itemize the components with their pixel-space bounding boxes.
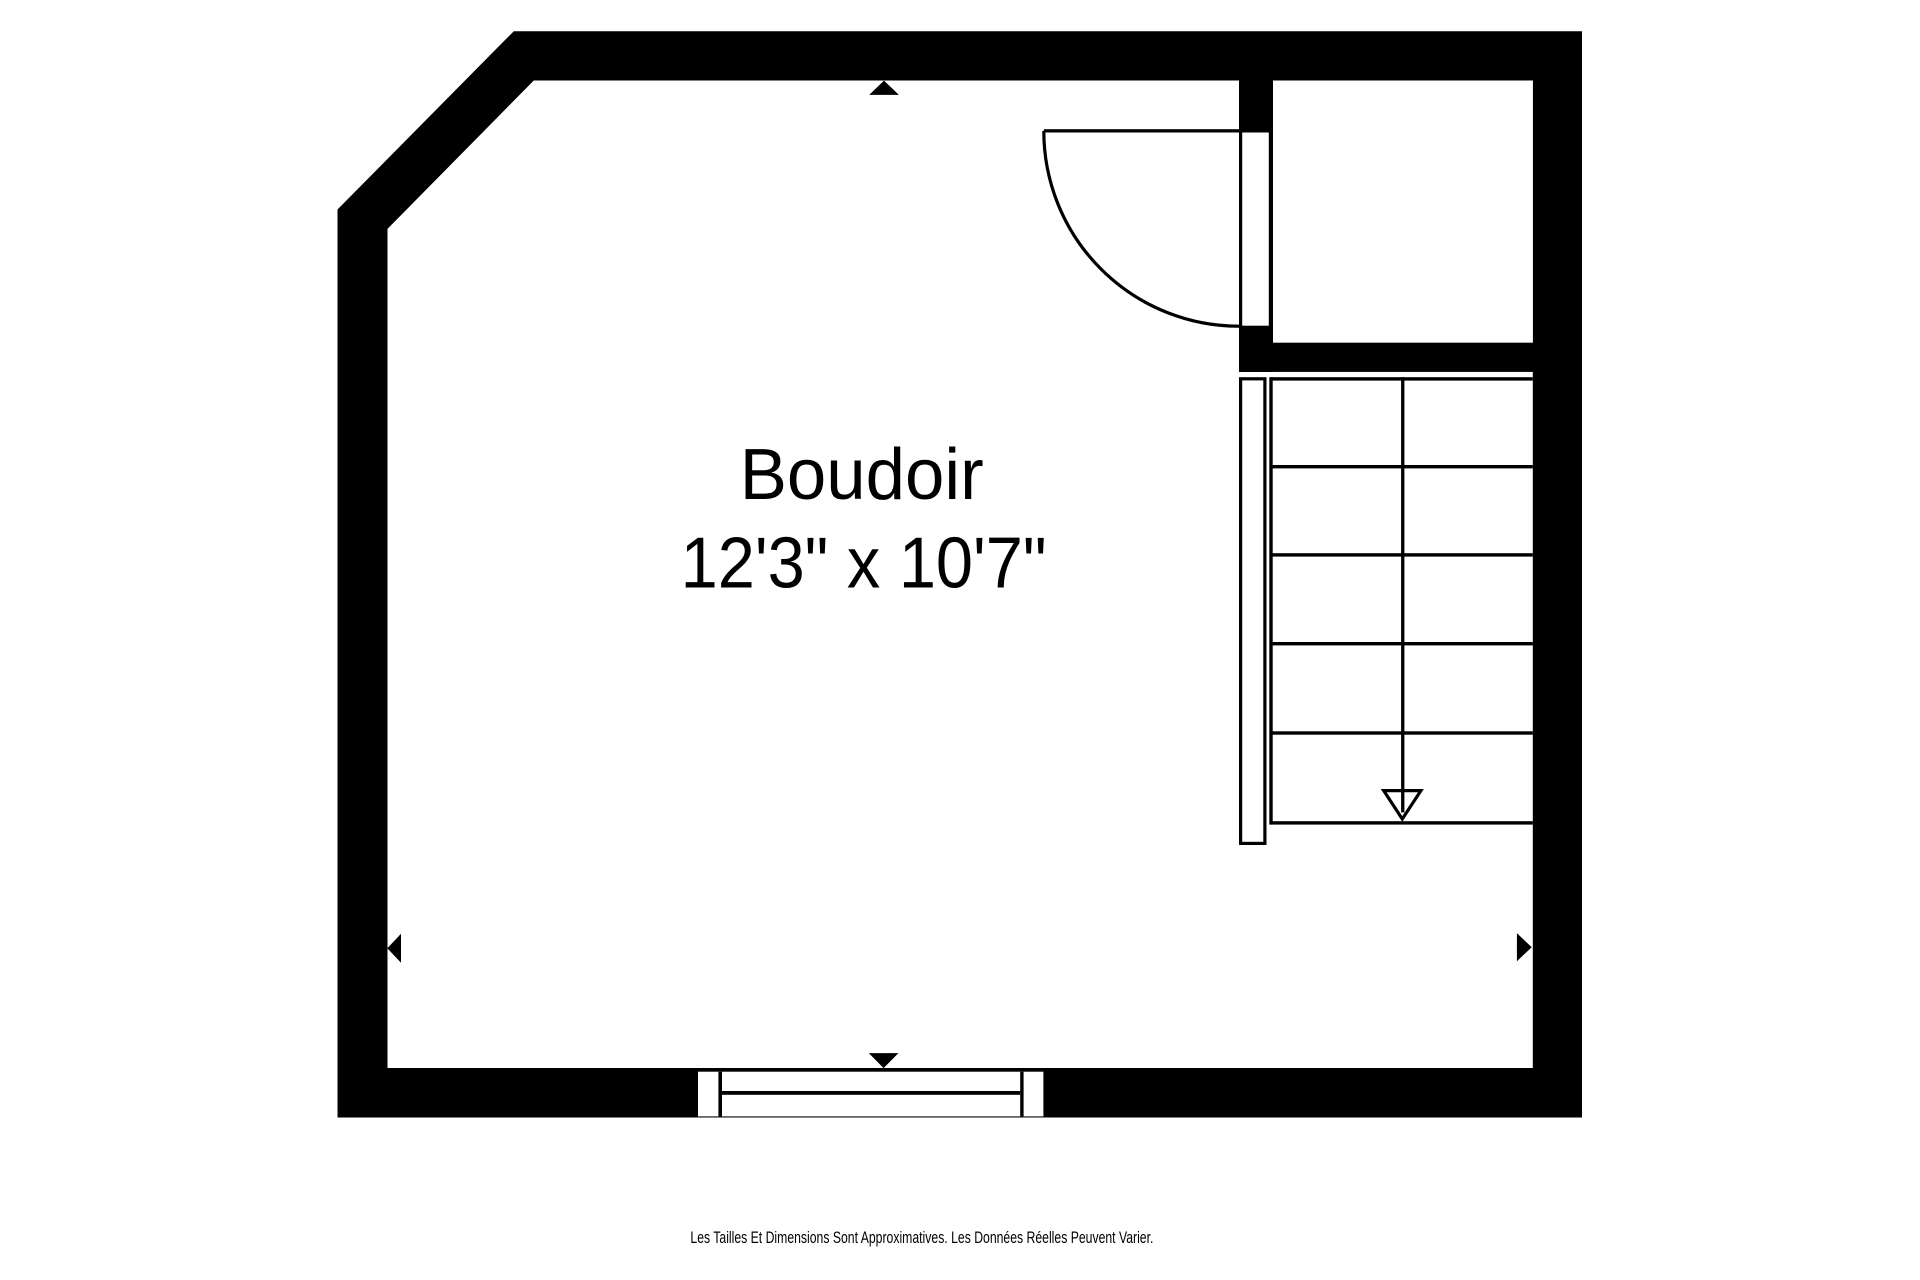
svg-text:Boudoir: Boudoir	[740, 434, 984, 515]
svg-text:Les Tailles Et Dimensions Sont: Les Tailles Et Dimensions Sont Approxima…	[690, 1228, 1153, 1247]
svg-text:12'3" x 10'7": 12'3" x 10'7"	[681, 523, 1047, 604]
